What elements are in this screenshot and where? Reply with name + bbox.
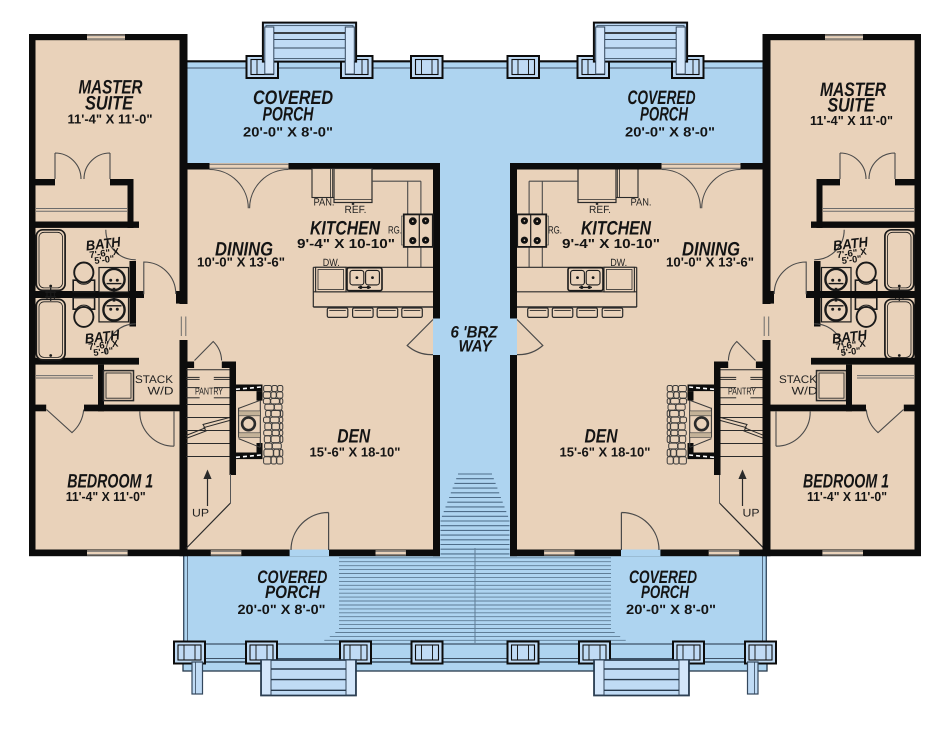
svg-text:WAY: WAY [459, 338, 494, 356]
svg-text:15'-6" X 18-10": 15'-6" X 18-10" [310, 445, 401, 460]
svg-text:DW.: DW. [610, 257, 627, 269]
svg-text:REF.: REF. [589, 204, 611, 216]
svg-text:UP: UP [192, 508, 209, 520]
svg-text:PORCH: PORCH [265, 582, 321, 602]
svg-text:11'-4" X 11'-0": 11'-4" X 11'-0" [66, 489, 146, 504]
svg-text:PORCH: PORCH [263, 104, 315, 126]
svg-text:REF.: REF. [345, 204, 367, 216]
svg-text:PANTRY: PANTRY [728, 387, 756, 398]
svg-text:10'-0" X 13'-6": 10'-0" X 13'-6" [197, 255, 285, 270]
svg-text:PAN.: PAN. [631, 196, 652, 208]
svg-text:W/D: W/D [148, 385, 174, 397]
svg-text:PAN.: PAN. [314, 196, 335, 208]
svg-text:11'-4" X 11'-0": 11'-4" X 11'-0" [68, 112, 153, 127]
svg-text:9'-4" X 10-10": 9'-4" X 10-10" [297, 236, 395, 251]
svg-text:RG.: RG. [388, 225, 402, 237]
svg-text:10'-0" X 13'-6": 10'-0" X 13'-6" [666, 255, 754, 270]
svg-text:RG.: RG. [548, 225, 562, 237]
svg-text:15'-6" X 18-10": 15'-6" X 18-10" [560, 445, 651, 460]
svg-text:11'-4" X 11'-0": 11'-4" X 11'-0" [807, 489, 887, 504]
svg-text:9'-4" X 10-10": 9'-4" X 10-10" [562, 236, 660, 251]
svg-text:W/D: W/D [792, 385, 818, 397]
svg-text:20'-0" X 8'-0": 20'-0" X 8'-0" [626, 602, 716, 617]
svg-text:PORCH: PORCH [641, 582, 690, 602]
svg-text:STACK: STACK [135, 374, 174, 386]
svg-text:UP: UP [743, 508, 760, 520]
svg-text:PANTRY: PANTRY [195, 387, 223, 398]
svg-text:STACK: STACK [779, 374, 818, 386]
svg-text:PORCH: PORCH [640, 104, 689, 126]
svg-text:20'-0" X 8'-0": 20'-0" X 8'-0" [238, 602, 326, 617]
svg-text:20'-0" X 8'-0": 20'-0" X 8'-0" [625, 125, 715, 140]
svg-text:20'-0" X 8'-0": 20'-0" X 8'-0" [243, 125, 333, 140]
svg-text:DW.: DW. [323, 257, 340, 269]
svg-text:11'-4" X 11'-0": 11'-4" X 11'-0" [810, 113, 893, 128]
